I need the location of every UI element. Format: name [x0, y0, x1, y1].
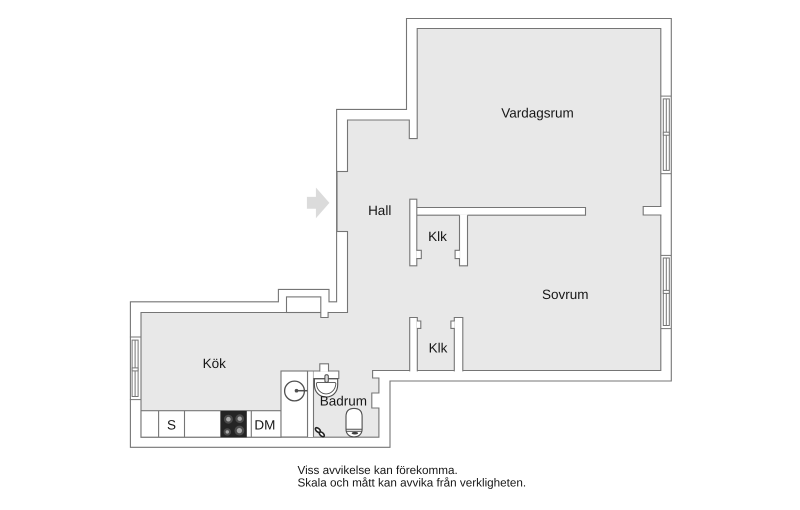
svg-text:Badrum: Badrum: [320, 393, 367, 408]
svg-text:Klk: Klk: [428, 229, 447, 244]
svg-text:Vardagsrum: Vardagsrum: [501, 106, 574, 121]
svg-text:Skala och mått kan avvika från: Skala och mått kan avvika från verklighe…: [298, 477, 527, 490]
svg-text:S: S: [167, 418, 176, 433]
svg-text:Kök: Kök: [203, 356, 227, 371]
svg-text:Hall: Hall: [368, 203, 391, 218]
svg-text:DM: DM: [254, 418, 275, 433]
svg-text:Viss avvikelse kan förekomma.: Viss avvikelse kan förekomma.: [298, 464, 458, 477]
svg-text:Sovrum: Sovrum: [542, 287, 589, 302]
svg-text:Klk: Klk: [429, 341, 448, 356]
